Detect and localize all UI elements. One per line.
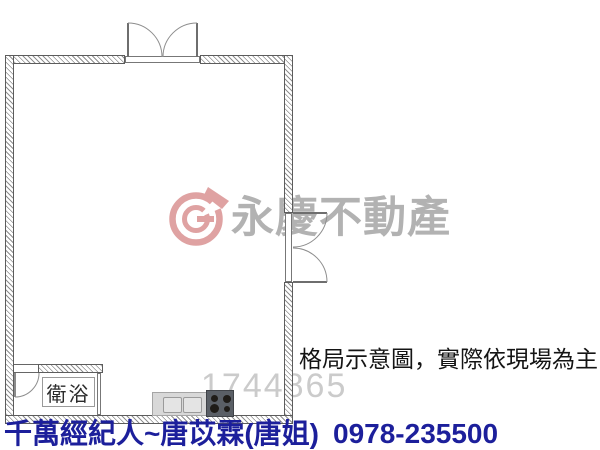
balcony-door-arc-bottom (293, 248, 327, 282)
agent-name-text: 千萬經紀人~唐苡霖(唐姐) (4, 419, 319, 448)
phone-number-text: 0978-235500 (333, 419, 498, 448)
floorplan-page: { "colors": { "wall_line": "#5c5c5c", "w… (0, 0, 600, 450)
bathroom-door-arc (15, 373, 39, 397)
entry-door-arc-right (163, 23, 197, 57)
door-swings (0, 0, 600, 450)
agent-banner: 千萬經紀人~唐苡霖(唐姐) 0978-235500 (4, 419, 498, 448)
disclaimer-text: 格局示意圖，實際依現場為主 (299, 340, 598, 374)
balcony-door-arc-top (293, 213, 327, 247)
entry-door-arc-left (128, 23, 162, 57)
